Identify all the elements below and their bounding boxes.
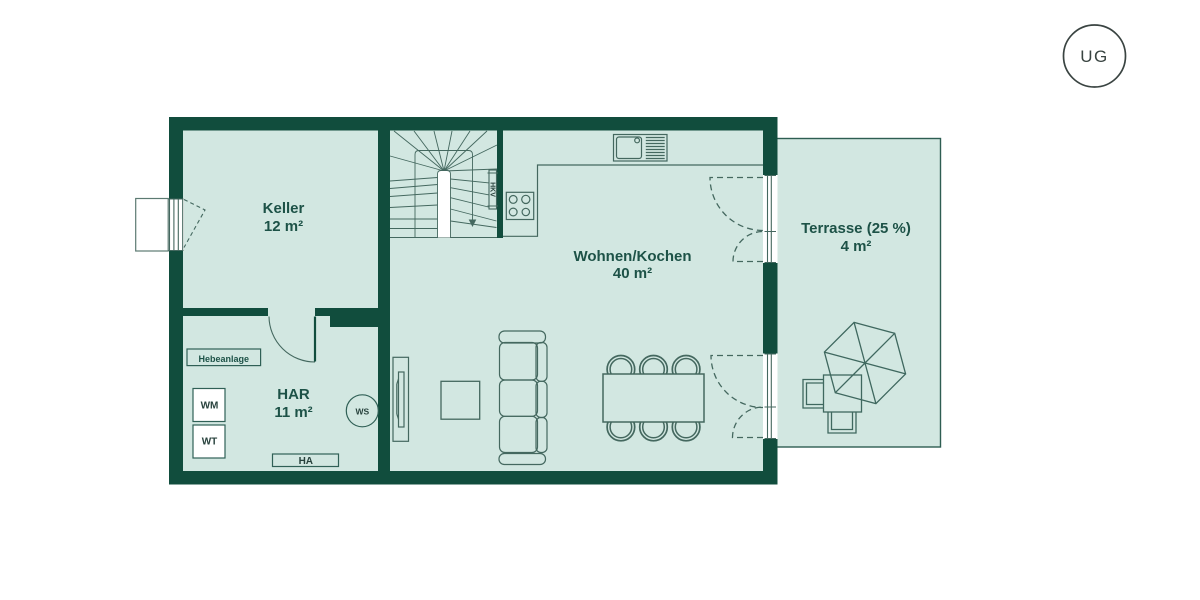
svg-text:WT: WT (202, 437, 218, 448)
svg-text:HAR: HAR (277, 386, 310, 403)
svg-text:40 m²: 40 m² (613, 265, 652, 282)
svg-text:HKV: HKV (488, 182, 495, 197)
svg-text:UG: UG (1080, 47, 1109, 66)
svg-text:4 m²: 4 m² (841, 238, 872, 255)
svg-text:Wohnen/Kochen: Wohnen/Kochen (573, 248, 691, 265)
svg-text:Hebeanlage: Hebeanlage (199, 354, 250, 364)
svg-text:WM: WM (201, 401, 219, 412)
svg-text:Keller: Keller (263, 200, 305, 217)
svg-text:WS: WS (355, 407, 369, 417)
svg-text:HA: HA (299, 456, 313, 467)
svg-text:12 m²: 12 m² (264, 218, 303, 235)
svg-text:Terrasse (25 %): Terrasse (25 %) (801, 220, 911, 237)
svg-text:11 m²: 11 m² (274, 404, 312, 421)
